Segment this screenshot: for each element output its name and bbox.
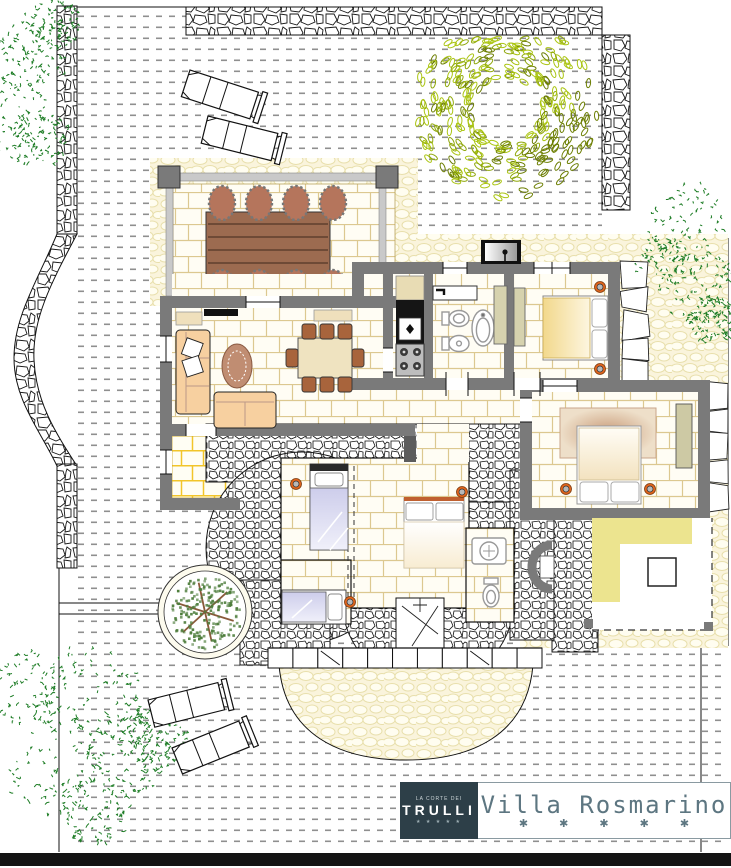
stove	[396, 344, 424, 376]
wall-lamp	[645, 484, 656, 495]
pergola-post	[704, 622, 713, 631]
title-block: LA CORTE DEI TRULLI ★ ★ ★ ★ ★ Villa Rosm…	[400, 782, 731, 839]
veranda-column-nw	[158, 166, 180, 188]
flagstone	[620, 261, 648, 288]
window	[543, 380, 577, 392]
dining-chair	[302, 324, 316, 339]
twin-bed-1-duvet	[310, 488, 348, 550]
terrace-paver	[517, 648, 542, 668]
wardrobe-1	[514, 288, 525, 346]
flagstone	[622, 310, 650, 341]
flagstone	[622, 338, 649, 361]
pergola-post	[584, 619, 593, 628]
wall-lamp	[595, 282, 606, 293]
outdoor-dining-table	[206, 212, 330, 278]
dining-chair	[352, 349, 364, 367]
site-plan-drawing	[0, 0, 731, 855]
double-bed-headboard	[404, 497, 464, 501]
pillow	[592, 330, 607, 358]
pergola-table	[648, 558, 676, 586]
stone-wall-left-mid	[57, 464, 77, 568]
dining-chair	[338, 324, 352, 339]
terrace-paver	[393, 648, 418, 668]
pillow	[580, 482, 608, 502]
wall-connector	[352, 262, 364, 308]
wall-lamp	[345, 597, 356, 608]
trullo-toilet	[483, 578, 499, 607]
door-gap	[186, 424, 216, 436]
bottom-bar	[0, 853, 731, 866]
trullo-sink	[472, 538, 506, 564]
terrace-paver	[293, 648, 318, 668]
outdoor-chair	[246, 186, 272, 220]
dining-chair	[302, 377, 316, 392]
dining-chair	[320, 377, 334, 392]
kitchen	[396, 276, 424, 376]
wardrobe-2	[676, 404, 692, 468]
double-bed-duvet	[404, 522, 464, 568]
window	[160, 336, 172, 362]
window	[246, 296, 280, 308]
toilet	[442, 311, 469, 327]
terrace-paver	[343, 648, 368, 668]
outdoor-chair	[209, 186, 235, 220]
logo-name-text: TRULLI	[402, 802, 476, 820]
kitchen-counter	[396, 276, 424, 300]
trullo-corridor	[417, 424, 469, 462]
bathtub	[472, 310, 494, 346]
terrace-paver	[442, 648, 467, 668]
logo-stars: ★ ★ ★ ★ ★	[416, 819, 462, 825]
window	[160, 450, 172, 474]
bed-2-duvet	[579, 428, 639, 480]
dining-chair	[286, 349, 298, 367]
dining-table	[298, 338, 352, 378]
veranda-column-ne	[376, 166, 398, 188]
wall-kitchen-east	[424, 274, 433, 378]
wall-lamp	[595, 364, 606, 375]
wall-west	[160, 296, 172, 510]
trulli-logo: LA CORTE DEI TRULLI ★ ★ ★ ★ ★	[400, 782, 478, 839]
pillow	[592, 299, 607, 327]
outdoor-unit	[481, 240, 521, 264]
wall-porch-south	[160, 498, 240, 510]
villa-title-box: Villa Rosmarino ✱ ✱ ✱ ✱ ✱	[478, 782, 731, 839]
twin-bed-1-headboard	[310, 464, 348, 471]
pergola	[584, 518, 713, 631]
wall-lamp	[457, 487, 468, 498]
sideboard-small	[176, 312, 202, 325]
wall-lamp	[291, 479, 302, 490]
villa-title: Villa Rosmarino	[481, 791, 728, 819]
villa-title-stars: ✱ ✱ ✱ ✱ ✱	[505, 817, 703, 830]
wall-lamp	[561, 484, 572, 495]
door-gap	[520, 398, 532, 422]
window	[443, 262, 467, 274]
terrace-paver	[417, 648, 442, 668]
bidet	[442, 336, 469, 352]
veranda-beam-left	[166, 188, 173, 296]
floor-plan-sheet: LA CORTE DEI TRULLI ★ ★ ★ ★ ★ Villa Rosm…	[0, 0, 731, 868]
veranda-beam-right	[379, 188, 386, 264]
stone-wall-left-upper	[57, 6, 77, 234]
planter	[158, 565, 252, 659]
terrace-paver	[368, 648, 393, 668]
dining-chair	[320, 324, 334, 339]
stone-wall-right	[602, 35, 630, 210]
pergola-shade-v	[592, 518, 620, 602]
pillow	[328, 594, 342, 620]
bath-cabinet	[494, 286, 507, 344]
pillow	[406, 503, 433, 520]
stone-wall-top	[186, 7, 602, 35]
terrace-paver-band	[268, 648, 542, 668]
veranda-beam-top	[166, 173, 382, 181]
pillow	[436, 503, 463, 520]
terrace-paver	[268, 648, 293, 668]
outdoor-chair	[320, 186, 346, 220]
terrace-paver	[492, 648, 517, 668]
pillow	[315, 473, 343, 486]
wall-bedroom2-east	[698, 380, 710, 520]
window	[534, 262, 570, 274]
wall-stub	[404, 436, 416, 462]
bath-counter	[433, 286, 477, 300]
outdoor-chair	[283, 186, 309, 220]
wall-living-north	[160, 296, 412, 308]
stone-wall-left-curved	[14, 234, 77, 466]
dining-chair	[338, 377, 352, 392]
bed-1-duvet	[543, 298, 590, 358]
wall-bedroom1-east	[608, 274, 620, 386]
sideboard	[314, 310, 352, 321]
tv-unit	[204, 309, 238, 316]
pillow	[611, 482, 639, 502]
door-gap	[383, 348, 393, 372]
